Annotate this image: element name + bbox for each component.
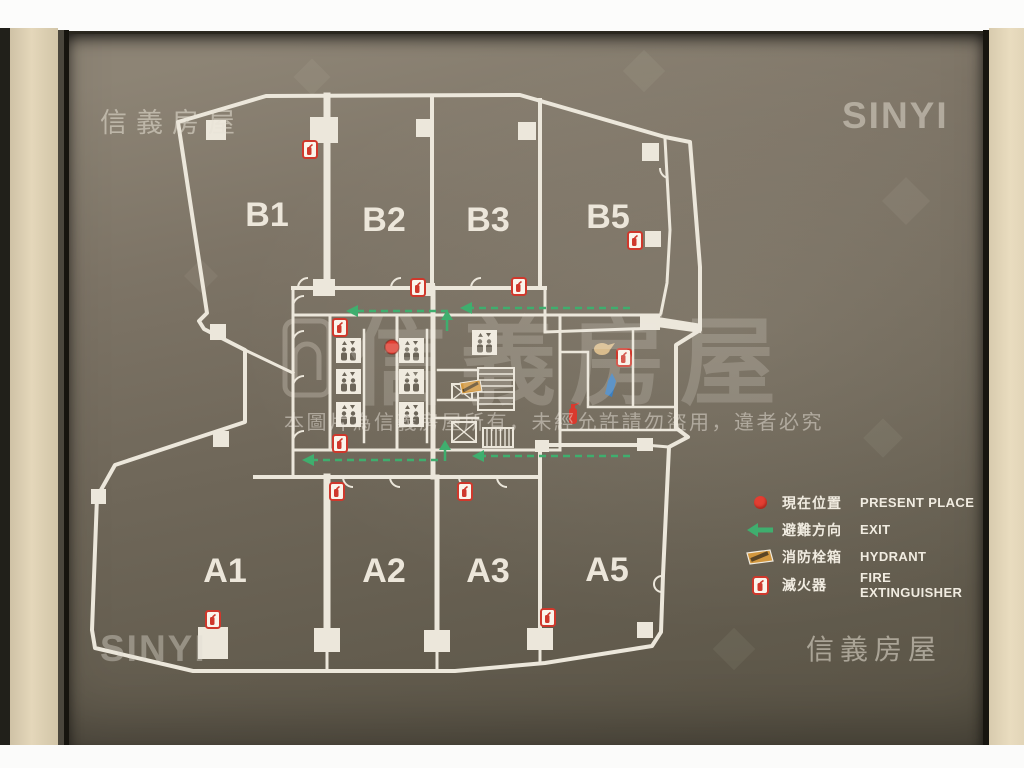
ledge (657, 317, 702, 333)
room-label-a1: A1 (203, 552, 246, 590)
room-label-b2: B2 (362, 201, 405, 239)
legend-item-exit: 避難方向 EXIT (746, 516, 978, 543)
evacuation-plan-sign-photo: B1 B2 B3 B5 A1 A2 A3 A5 現在位置 PRESENT PLA… (0, 0, 1024, 768)
room-label-b3: B3 (466, 201, 509, 239)
blue-direction-marker (605, 373, 616, 397)
legend-zh-label: 消防栓箱 (782, 547, 852, 567)
legend-en-label: PRESENT PLACE (860, 495, 978, 510)
stairs-icons (452, 368, 514, 447)
legend-zh-label: 避難方向 (782, 520, 852, 540)
legend-zh-label: 現在位置 (782, 493, 852, 513)
legend-en-label: EXIT (860, 522, 978, 537)
legend-item-present-place: 現在位置 PRESENT PLACE (746, 489, 978, 516)
hydrant-marker (460, 380, 482, 394)
elevator-icons (336, 330, 497, 427)
red-extinguisher-figure (569, 403, 579, 424)
legend: 現在位置 PRESENT PLACE 避難方向 EXIT 消防栓箱 HYDRAN… (746, 489, 978, 597)
present-place-dot (385, 340, 399, 354)
room-label-b1: B1 (245, 196, 288, 234)
legend-item-hydrant: 消防栓箱 HYDRANT (746, 543, 978, 570)
present-place-dot-icon (754, 496, 767, 509)
equipment-tan-mark (594, 343, 615, 355)
legend-en-label: FIRE EXTINGUISHER (860, 570, 978, 600)
floor-plan: B1 B2 B3 B5 A1 A2 A3 A5 (0, 0, 1024, 768)
fire-extinguisher-box-icon (746, 576, 774, 595)
exit-arrow-icon (746, 523, 774, 537)
legend-en-label: HYDRANT (860, 549, 978, 564)
room-label-b5: B5 (586, 198, 629, 236)
hydrant-box-icon (746, 549, 774, 565)
room-label-a2: A2 (362, 552, 405, 590)
legend-zh-label: 滅火器 (782, 575, 852, 595)
legend-item-fire-extinguisher: 滅火器 FIRE EXTINGUISHER (746, 570, 978, 597)
room-label-a5: A5 (585, 551, 628, 589)
room-label-a3: A3 (466, 552, 509, 590)
